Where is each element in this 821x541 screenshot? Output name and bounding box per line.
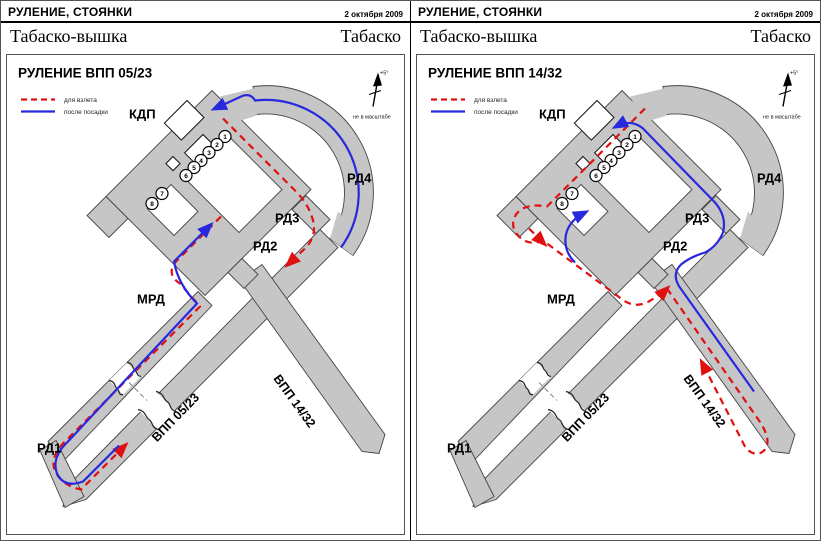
diagram-title: РУЛЕНИЕ ВПП 14/32 [428,66,562,81]
parking-stand-number: 8 [560,201,564,208]
parking-stand-number: 5 [602,165,606,172]
label-rd2: РД2 [663,239,687,254]
station-name: Табаско-вышка [420,26,537,47]
takeoff-route [529,229,544,244]
panel-rwy-0523: РУЛЕНИЕ, СТОЯНКИ 2 октября 2009 Табаско-… [1,1,411,540]
parking-stand-number: 1 [223,134,227,141]
panel-rwy-1432: РУЛЕНИЕ, СТОЯНКИ 2 октября 2009 Табаско-… [411,1,820,540]
panel-header: РУЛЕНИЕ, СТОЯНКИ 2 октября 2009 [411,1,820,23]
legend-takeoff-label: для взлета [474,97,507,104]
label-kdp: КДП [129,107,156,122]
north-scale-note: не в масштабе [353,115,391,121]
label-rd4: РД4 [757,171,782,186]
north-scale-note: не в масштабе [763,115,801,121]
diagram-title: РУЛЕНИЕ ВПП 05/23 [18,66,153,81]
parking-stand-number: 7 [160,191,164,198]
diagram-frame: 12345678РУЛЕНИЕ ВПП 14/32для взлетапосле… [416,54,815,535]
diagram-frame: 12345678РУЛЕНИЕ ВПП 05/23для взлетапосле… [6,54,405,535]
station-row: Табаско-вышка Табаско [1,23,410,52]
parking-stand-number: 4 [199,158,203,165]
header-date: 2 октября 2009 [754,10,813,19]
station-callsign: Табаско [340,26,401,47]
label-kdp: КДП [539,107,566,122]
header-title: РУЛЕНИЕ, СТОЯНКИ [8,5,132,19]
parking-stand-number: 7 [570,191,574,198]
label-rd2: РД2 [253,239,277,254]
legend-landing-label: после посадки [64,109,108,116]
parking-stand-number: 4 [609,158,613,165]
parking-stand-number: 6 [184,173,188,180]
taxi-diagram-0523: 12345678РУЛЕНИЕ ВПП 05/23для взлетапосле… [7,55,404,534]
label-rd1: РД1 [37,441,61,456]
parking-stand-number: 3 [207,150,211,157]
station-row: Табаско-вышка Табаско [411,23,820,52]
north-declination: +5° [790,71,798,77]
parking-stand-number: 2 [625,142,629,149]
parking-stand-number: 8 [150,201,154,208]
station-callsign: Табаско [750,26,811,47]
north-declination: +5° [380,71,388,77]
panel-header: РУЛЕНИЕ, СТОЯНКИ 2 октября 2009 [1,1,410,23]
break-centerline [539,383,557,401]
parking-stand-number: 2 [215,142,219,149]
parking-stand-number: 1 [633,134,637,141]
label-mrd: МРД [547,292,576,307]
label-rd3: РД3 [685,211,709,226]
parking-stand-number: 3 [617,150,621,157]
label-mrd: МРД [137,292,166,307]
parking-stand-number: 6 [594,173,598,180]
label-rd3: РД3 [275,211,299,226]
label-rd4: РД4 [347,171,372,186]
parking-stand-number: 5 [192,165,196,172]
header-title: РУЛЕНИЕ, СТОЯНКИ [418,5,542,19]
station-name: Табаско-вышка [10,26,127,47]
legend-landing-label: после посадки [474,109,518,116]
break-centerline [129,383,147,401]
chart-page: РУЛЕНИЕ, СТОЯНКИ 2 октября 2009 Табаско-… [0,0,821,541]
taxi-diagram-1432: 12345678РУЛЕНИЕ ВПП 14/32для взлетапосле… [417,55,814,534]
legend-takeoff-label: для взлета [64,97,97,104]
header-date: 2 октября 2009 [344,10,403,19]
label-rd1: РД1 [447,441,471,456]
